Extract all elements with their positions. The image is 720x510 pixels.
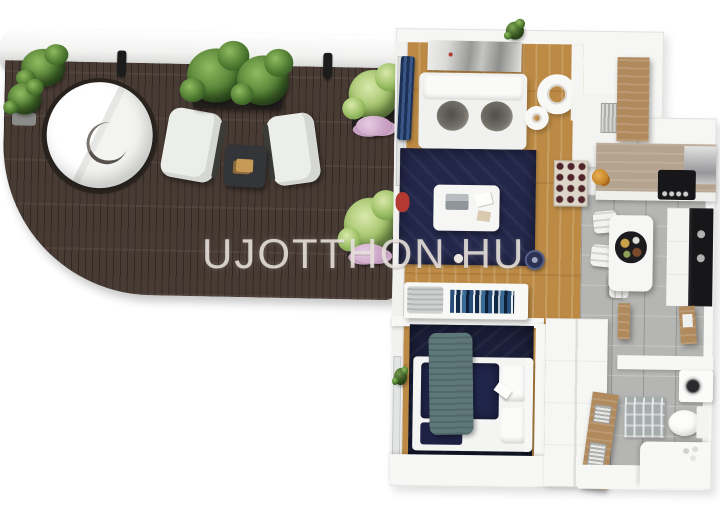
teal-blanket xyxy=(428,333,473,436)
terrace-armchair-left xyxy=(159,106,225,184)
floor-plan-stage: UJOTTHON HU xyxy=(0,0,720,510)
door-vent-grid xyxy=(593,404,612,424)
table-books xyxy=(236,159,254,173)
watermark: UJOTTHON HU xyxy=(202,227,525,281)
terrace-side-table xyxy=(223,144,267,188)
flowers-icon xyxy=(592,169,608,185)
cooktop-icon xyxy=(658,170,696,201)
wood-door-jamb xyxy=(618,303,631,339)
watermark-text-right: HU xyxy=(461,230,526,278)
washing-machine-icon xyxy=(679,370,713,402)
tall-wood-cabinet xyxy=(616,57,649,141)
red-pillow xyxy=(395,192,409,212)
bath-mat xyxy=(624,397,665,438)
exterior-wall xyxy=(390,454,544,486)
bath-counter xyxy=(640,441,711,488)
wall-lamp-icon xyxy=(323,53,333,79)
fur-throw xyxy=(437,101,469,131)
wine-rack xyxy=(553,160,588,206)
open-wood-door xyxy=(679,306,697,345)
interior-wall xyxy=(617,355,713,370)
laptop-icon xyxy=(445,194,468,210)
books-row xyxy=(450,290,514,314)
terrace-armchair-right xyxy=(265,111,322,187)
food-tray xyxy=(615,231,647,263)
sideboard-device xyxy=(407,286,443,314)
fur-throw xyxy=(481,101,513,131)
bottles-icon xyxy=(692,446,698,452)
dining-table xyxy=(608,215,653,292)
sideboard xyxy=(404,282,528,320)
coffee-table xyxy=(433,185,500,232)
wall-lamp-icon xyxy=(117,50,127,76)
sofa xyxy=(418,72,527,150)
watermark-dot xyxy=(454,254,463,263)
oven-cabinet xyxy=(666,208,689,306)
papers xyxy=(474,192,492,207)
notebook xyxy=(477,210,491,222)
toilet-cistern xyxy=(696,406,708,438)
counter-front xyxy=(596,191,716,202)
flowers-icon xyxy=(356,115,392,136)
oven-icon xyxy=(688,208,713,306)
headboard xyxy=(524,358,533,452)
pillow xyxy=(500,407,527,443)
watermark-text-left: UJOTTHON xyxy=(202,230,447,278)
wall-art xyxy=(427,40,522,72)
